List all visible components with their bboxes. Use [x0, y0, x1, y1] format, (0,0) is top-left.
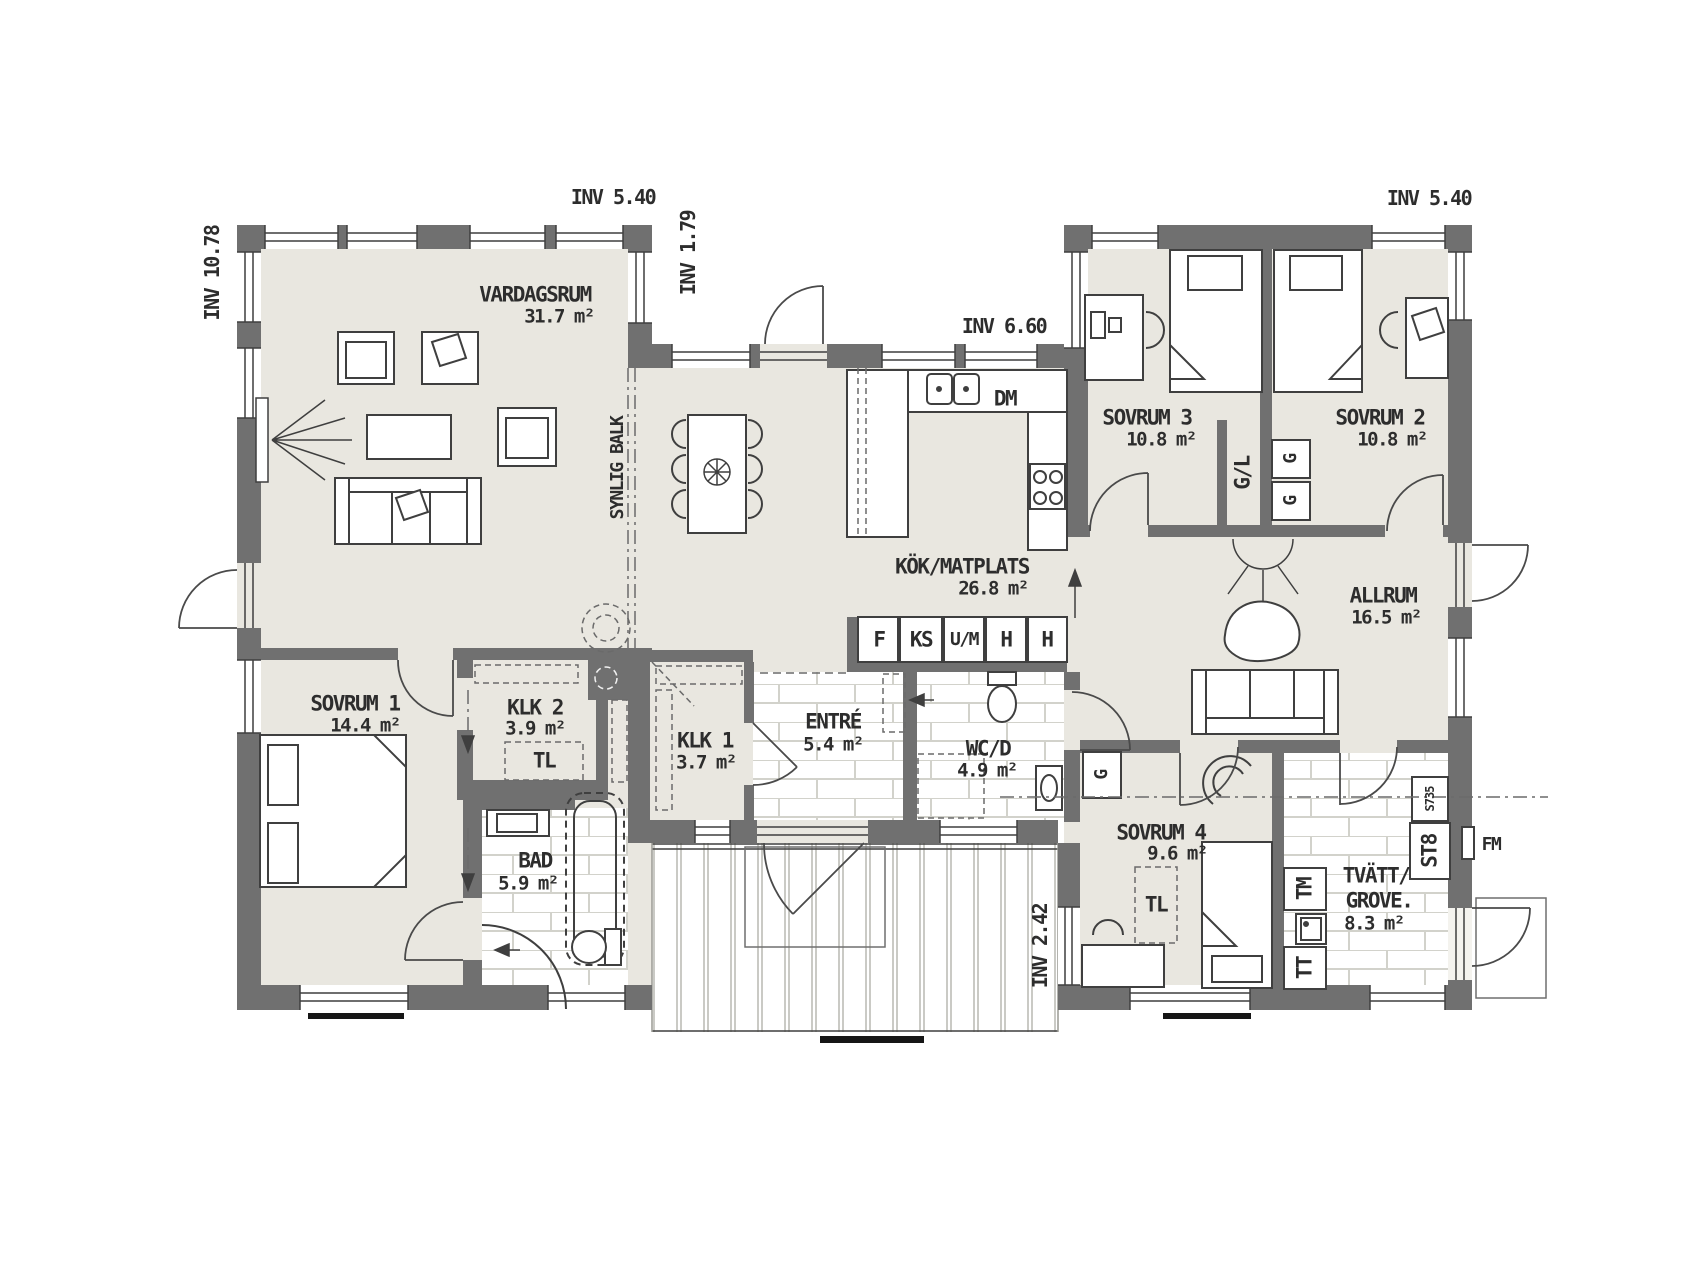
measure-top-left: INV 5.40: [571, 187, 655, 207]
window: [1448, 252, 1472, 320]
room-label-allrum: ALLRUM: [1350, 586, 1417, 607]
armchair-icon: [422, 332, 478, 384]
toilet-icon: [988, 672, 1016, 722]
room-area-sovrum1: 14.4 m²: [330, 717, 400, 736]
room-area-bad: 5.9 m²: [498, 875, 558, 894]
window: [1092, 225, 1158, 249]
cabinet-s735-label: S735: [1424, 787, 1436, 812]
room-area-sovrum4: 9.6 m²: [1147, 845, 1207, 864]
window: [470, 225, 545, 249]
tl-sovrum4-label: TL: [1145, 895, 1167, 916]
wardrobe-gl-label: G/L: [1233, 456, 1254, 489]
window: [300, 985, 408, 1010]
window: [1370, 985, 1445, 1010]
room-label-vardagsrum: VARDAGSRUM: [479, 285, 590, 306]
room-area-entre: 5.4 m²: [803, 736, 863, 755]
window: [548, 985, 625, 1010]
fridge-label: F: [873, 630, 884, 651]
room-label-sovrum2: SOVRUM 2: [1335, 408, 1424, 429]
plant-icon: [704, 459, 730, 485]
freezer-label: KS: [910, 630, 932, 651]
room-area-wcd: 4.9 m²: [957, 762, 1017, 781]
room-label-bad: BAD: [518, 851, 551, 872]
window: [940, 820, 1017, 843]
room-label-sovrum3: SOVRUM 3: [1102, 408, 1191, 429]
window: [265, 225, 338, 249]
room-label-tvatt2: GROVE.: [1346, 891, 1413, 912]
room-label-entre: ENTRÉ: [805, 712, 861, 733]
cabinet-h1-label: H: [1000, 630, 1011, 651]
window: [1448, 638, 1472, 717]
wardrobe-g2-label: G: [1282, 496, 1300, 505]
window: [965, 344, 1037, 368]
washbasin-icon: [1036, 766, 1062, 810]
visible-beam-label: SYNLIG BALK: [609, 417, 627, 520]
fm-label: FM: [1482, 836, 1501, 854]
window: [882, 344, 955, 368]
room-area-vardagsrum: 31.7 m²: [524, 308, 594, 327]
exterior-door-allrum: [1472, 545, 1528, 601]
window: [672, 344, 750, 368]
measure-deck: INV 2.42: [1030, 904, 1050, 988]
room-area-klk2: 3.9 m²: [505, 720, 565, 739]
window: [695, 820, 730, 843]
wardrobe-g-hall-label: G: [1093, 770, 1111, 779]
measure-middle: INV 6.60: [962, 316, 1046, 336]
window: [556, 225, 623, 249]
sofa-icon: [335, 478, 481, 544]
window: [1058, 907, 1080, 985]
bed-icon: [1274, 250, 1362, 392]
coffee-table-icon: [367, 415, 451, 459]
window: [237, 660, 261, 733]
measure-top-right: INV 5.40: [1387, 188, 1471, 208]
measure-left: INV 10.78: [202, 226, 222, 321]
room-area-sovrum3: 10.8 m²: [1126, 431, 1196, 450]
stove-icon: [1030, 464, 1065, 509]
room-label-sovrum1: SOVRUM 1: [310, 694, 399, 715]
toilet-icon: [572, 929, 621, 965]
side-stoop: [1476, 898, 1546, 998]
cabinet-st8-label: ST8: [1420, 834, 1441, 867]
floor-plan: INV 10.78 INV 5.40 INV 1.79 INV 6.60 INV…: [0, 0, 1707, 1280]
oven-micro-label: U/M: [950, 631, 978, 649]
room-label-klk2: KLK 2: [507, 698, 563, 719]
dryer-label: TT: [1295, 957, 1316, 979]
washing-machine-label: TM: [1295, 878, 1316, 900]
pouf-icon: [1225, 602, 1300, 662]
exterior-door-west: [179, 570, 237, 628]
measure-notch: INV 1.79: [678, 211, 698, 295]
room-label-klk1: KLK 1: [677, 731, 733, 752]
window: [628, 252, 652, 323]
sofa-icon: [1192, 670, 1338, 734]
room-label-kok: KÖK/MATPLATS: [895, 557, 1029, 578]
room-label-tvatt: TVÄTT/: [1343, 866, 1410, 887]
bed-icon: [1170, 250, 1262, 392]
window: [347, 225, 417, 249]
room-area-sovrum2: 10.8 m²: [1357, 431, 1427, 450]
room-label-sovrum4: SOVRUM 4: [1116, 823, 1205, 844]
wardrobe-g1-label: G: [1282, 454, 1300, 463]
fm-marker: [1462, 827, 1474, 859]
window: [237, 252, 261, 322]
room-area-klk1: 3.7 m²: [676, 754, 736, 773]
dishwasher-label: DM: [994, 389, 1016, 410]
kitchen-island: [847, 370, 908, 537]
tl-klk2-label: TL: [533, 751, 555, 772]
sink-icon: [927, 374, 979, 404]
bed-icon: [1202, 842, 1272, 988]
room-area-allrum: 16.5 m²: [1351, 609, 1421, 628]
armchair-icon: [498, 408, 556, 466]
exterior-door-north: [765, 286, 823, 344]
cabinet-h2-label: H: [1041, 630, 1052, 651]
laundry-sink-icon: [1296, 914, 1326, 944]
window: [1372, 225, 1445, 249]
room-area-tvatt: 8.3 m²: [1344, 915, 1404, 934]
armchair-icon: [338, 332, 394, 384]
room-area-kok: 26.8 m²: [958, 580, 1028, 599]
double-bed-icon: [260, 735, 406, 887]
room-label-wcd: WC/D: [966, 739, 1011, 760]
